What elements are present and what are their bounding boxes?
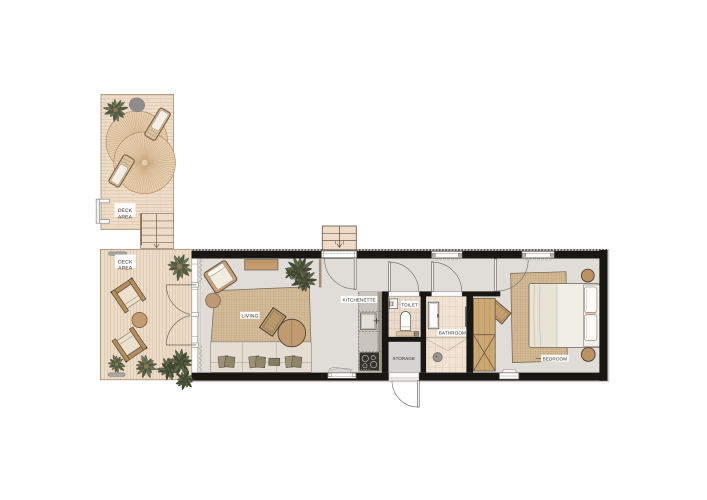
svg-text:BATHROOM: BATHROOM — [439, 331, 466, 336]
svg-text:TOILET: TOILET — [401, 303, 418, 308]
svg-text:DECK: DECK — [118, 260, 133, 266]
svg-text:STORAGE: STORAGE — [392, 356, 415, 361]
svg-text:KITCHENETTE: KITCHENETTE — [342, 298, 375, 303]
svg-text:LIVING: LIVING — [241, 313, 258, 319]
svg-text:AREA: AREA — [118, 214, 133, 220]
svg-text:BEDROOM: BEDROOM — [543, 356, 568, 361]
svg-text:DECK: DECK — [118, 208, 133, 214]
svg-text:AREA: AREA — [118, 266, 133, 272]
